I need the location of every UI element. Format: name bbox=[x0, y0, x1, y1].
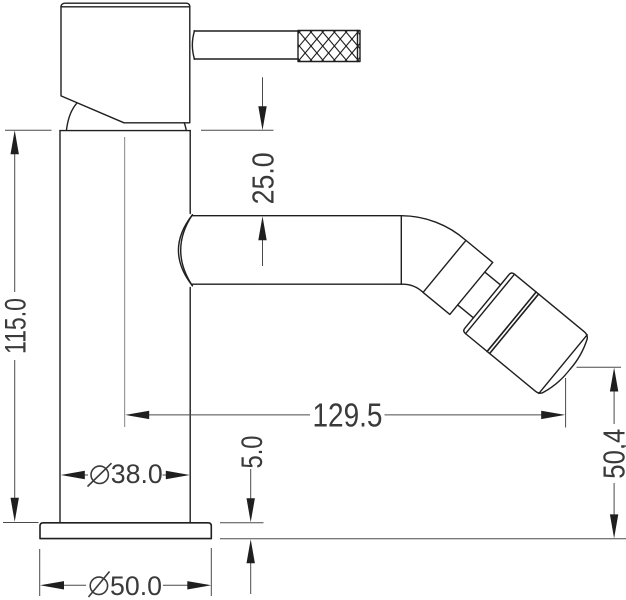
svg-text:50.0: 50.0 bbox=[110, 571, 162, 600]
svg-text:38.0: 38.0 bbox=[111, 459, 163, 489]
svg-text:50,4: 50,4 bbox=[597, 429, 626, 479]
svg-text:129.5: 129.5 bbox=[313, 397, 383, 434]
svg-text:115.0: 115.0 bbox=[0, 298, 33, 354]
svg-text:25.0: 25.0 bbox=[245, 152, 280, 204]
svg-text:5.0: 5.0 bbox=[236, 436, 269, 469]
